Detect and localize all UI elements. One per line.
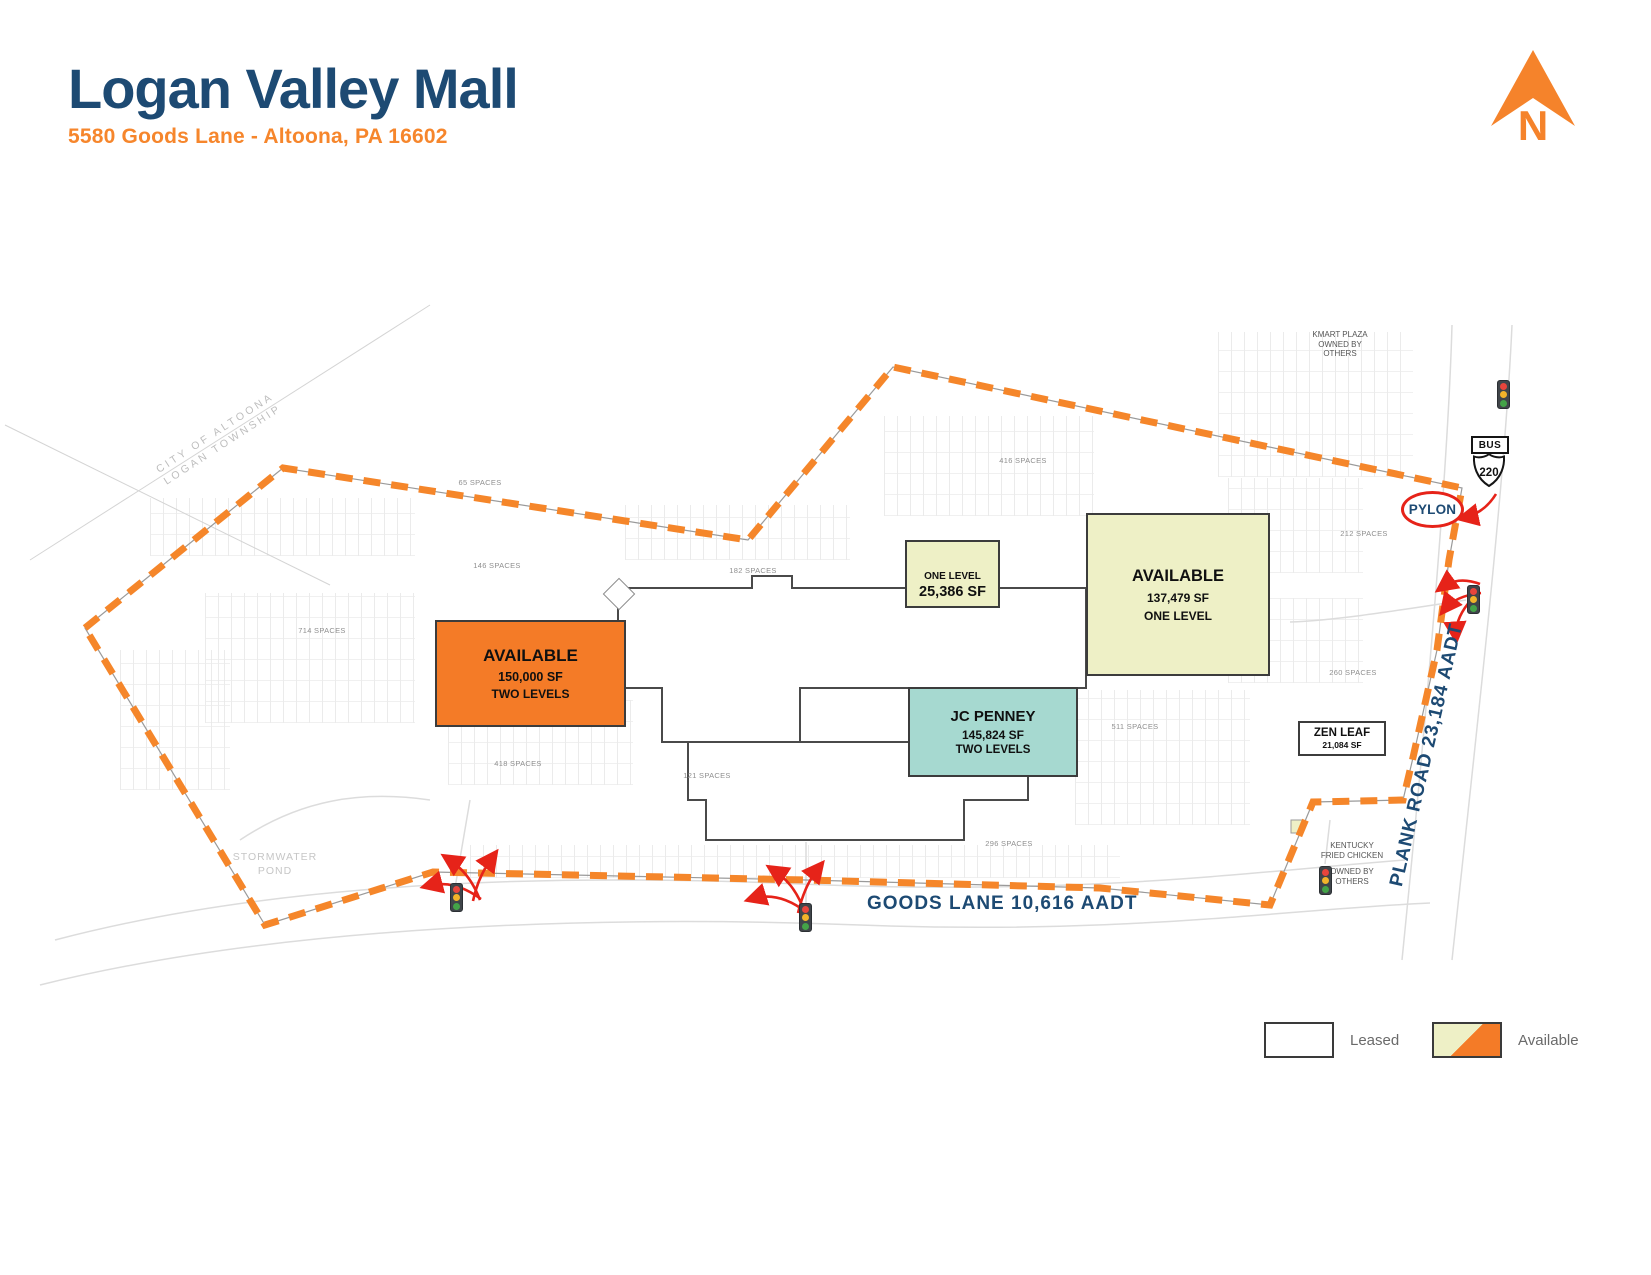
parking-count-label: 714 SPACES <box>298 626 345 635</box>
legend-label-leased: Leased <box>1350 1032 1399 1049</box>
parking-count-label: 416 SPACES <box>999 456 1046 465</box>
site-plan-page: Logan Valley Mall 5580 Goods Lane - Alto… <box>0 0 1651 1275</box>
map-base-layer <box>0 0 1651 1275</box>
building-name: ONE LEVEL <box>924 571 981 582</box>
building-size: 145,824 SF <box>962 728 1024 742</box>
building-available-137479sf: AVAILABLE 137,479 SF ONE LEVEL <box>1086 513 1270 676</box>
building-one-level-25386sf: ONE LEVEL 25,386 SF <box>905 540 1000 608</box>
legend-swatch-leased <box>1264 1022 1334 1058</box>
kmart-line: OTHERS <box>1312 349 1367 359</box>
parking-count-label: 121 SPACES <box>683 771 730 780</box>
kfc-line: FRIED CHICKEN <box>1321 851 1383 861</box>
kmart-line: KMART PLAZA <box>1312 330 1367 340</box>
traffic-light-icon <box>799 903 812 932</box>
header: Logan Valley Mall 5580 Goods Lane - Alto… <box>68 60 518 149</box>
building-size: 150,000 SF <box>498 670 563 684</box>
parking-count-label: 418 SPACES <box>494 759 541 768</box>
north-label: N <box>1488 102 1578 150</box>
kfc-line: KENTUCKY <box>1321 841 1383 851</box>
building-size: 137,479 SF <box>1147 591 1209 605</box>
building-name: AVAILABLE <box>483 646 578 666</box>
traffic-light-icon <box>1467 585 1480 614</box>
building-name: JC PENNEY <box>950 708 1035 725</box>
traffic-light-icon <box>450 883 463 912</box>
traffic-light-icon <box>1319 866 1332 895</box>
pond-line: STORMWATER <box>215 850 335 864</box>
building-size: 25,386 SF <box>919 584 986 600</box>
legend-item-leased: Leased <box>1264 1022 1399 1058</box>
parking-count-label: 260 SPACES <box>1329 668 1376 677</box>
building-jc-penney: JC PENNEY 145,824 SF TWO LEVELS <box>908 687 1078 777</box>
legend-label-available: Available <box>1518 1032 1579 1049</box>
goods-lane-label: GOODS LANE 10,616 AADT <box>867 893 1137 915</box>
stormwater-pond-label: STORMWATER POND <box>215 850 335 878</box>
parking-count-label: 511 SPACES <box>1112 722 1159 731</box>
building-size: 21,084 SF <box>1322 740 1361 750</box>
legend-item-available: Available <box>1432 1022 1579 1058</box>
parking-count-label: 212 SPACES <box>1340 529 1387 538</box>
traffic-light-icon <box>1497 380 1510 409</box>
pond-line: POND <box>215 864 335 878</box>
building-levels: TWO LEVELS <box>492 687 570 701</box>
parking-count-label: 146 SPACES <box>473 561 520 570</box>
legend-swatch-available <box>1432 1022 1502 1058</box>
parking-count-label: 182 SPACES <box>729 566 776 575</box>
page-title: Logan Valley Mall <box>68 60 518 119</box>
building-levels: ONE LEVEL <box>1144 609 1212 623</box>
kmart-plaza-label: KMART PLAZA OWNED BY OTHERS <box>1312 330 1367 359</box>
route-number: 220 <box>1479 467 1498 479</box>
parking-count-label: 296 SPACES <box>985 839 1032 848</box>
north-arrow-icon: N <box>1488 46 1578 196</box>
building-name: AVAILABLE <box>1132 567 1224 586</box>
building-name: ZEN LEAF <box>1314 727 1370 739</box>
pylon-sign: PYLON <box>1401 491 1464 528</box>
building-zen-leaf: ZEN LEAF 21,084 SF <box>1298 721 1386 756</box>
page-subtitle: 5580 Goods Lane - Altoona, PA 16602 <box>68 125 518 149</box>
building-levels: TWO LEVELS <box>956 744 1031 756</box>
kmart-line: OWNED BY <box>1312 340 1367 350</box>
building-available-150000sf: AVAILABLE 150,000 SF TWO LEVELS <box>435 620 626 727</box>
parking-count-label: 65 SPACES <box>459 478 502 487</box>
us-route-220-shield: 220 <box>1472 452 1506 488</box>
